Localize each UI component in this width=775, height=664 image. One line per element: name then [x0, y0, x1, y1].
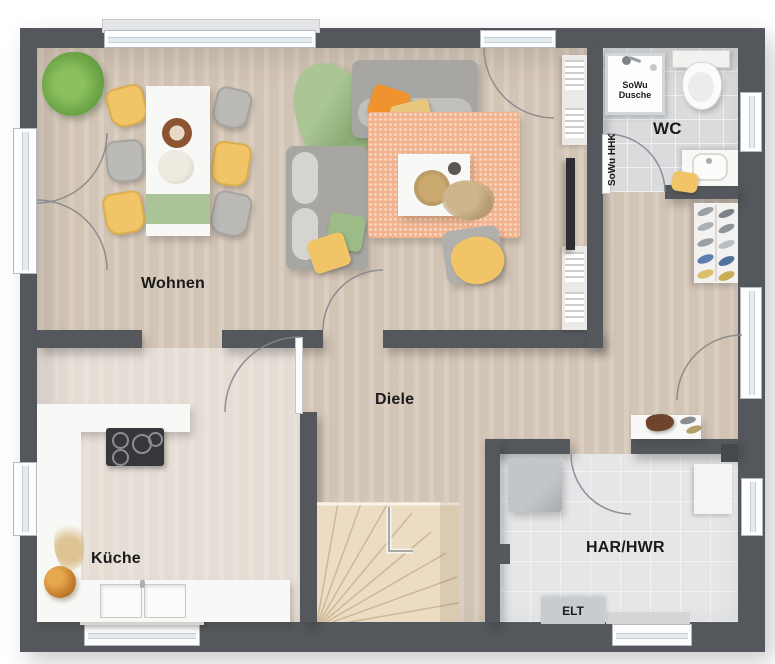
shelf-books	[565, 252, 584, 282]
wall-wohnen-south-2	[222, 330, 323, 348]
door-terrace-top	[480, 30, 556, 48]
shelf-books	[565, 292, 584, 322]
electrical-box: ELT	[541, 598, 605, 624]
shoe-rack-divider	[715, 205, 717, 281]
cooktop-burner	[112, 432, 129, 449]
window-living-top	[104, 30, 316, 48]
room-label-wc: WC	[653, 120, 682, 137]
washing-machine	[508, 460, 562, 512]
sink-faucet	[140, 580, 145, 588]
room-label-wohnen: Wohnen	[141, 276, 205, 292]
appliance-white	[694, 464, 732, 514]
tv-screen	[566, 158, 575, 250]
window-har-bottom	[612, 624, 692, 646]
floor-plan: SoWu Dusche ELT	[0, 0, 775, 664]
door-french-left	[13, 128, 37, 274]
room-label-har-hwr: HAR/HWR	[586, 540, 665, 556]
window-wc-right	[740, 92, 762, 152]
heater-label: SoWu HHK	[607, 133, 619, 186]
utility-box	[492, 544, 510, 564]
wall-wohnen-south-1	[37, 330, 142, 348]
electrical-label: ELT	[562, 604, 584, 618]
coffee-table-vase	[448, 162, 461, 175]
dining-chair	[104, 138, 146, 183]
kitchen-sink	[144, 584, 186, 618]
room-label-kueche: Küche	[91, 551, 141, 567]
fruit-basket	[44, 566, 76, 598]
sofa-left-cushion	[292, 152, 318, 204]
dried-flowers	[54, 520, 84, 570]
wall-wohnen-east	[587, 48, 603, 348]
cooktop-burner	[112, 449, 129, 466]
kitchen-sink	[100, 584, 142, 618]
wall-kitchen-stairs	[300, 412, 317, 622]
table-runner	[146, 194, 210, 224]
har-window-sill	[606, 612, 690, 624]
utility-box	[721, 444, 738, 462]
towel-yellow	[671, 170, 700, 193]
kitchen-door-leaf	[295, 337, 303, 414]
shelf-books	[565, 60, 584, 90]
window-kitchen-bottom	[84, 624, 200, 646]
cooktop-burner	[148, 432, 163, 447]
window-kitchen-left	[13, 462, 37, 536]
room-label-diele: Diele	[375, 392, 414, 408]
table-flowers	[158, 150, 194, 184]
wall-har-west	[485, 439, 500, 622]
shower-drain	[650, 64, 657, 71]
door-entrance-right	[740, 287, 762, 399]
shelf-books	[565, 108, 584, 138]
wall-wohnen-south-3	[383, 330, 603, 348]
shower-label: SoWu Dusche	[608, 80, 662, 101]
washbasin-faucet	[706, 158, 712, 164]
window-har-right	[741, 478, 763, 536]
wall-left	[20, 28, 37, 652]
toilet-seat	[688, 72, 714, 102]
table-bowl	[162, 118, 192, 148]
